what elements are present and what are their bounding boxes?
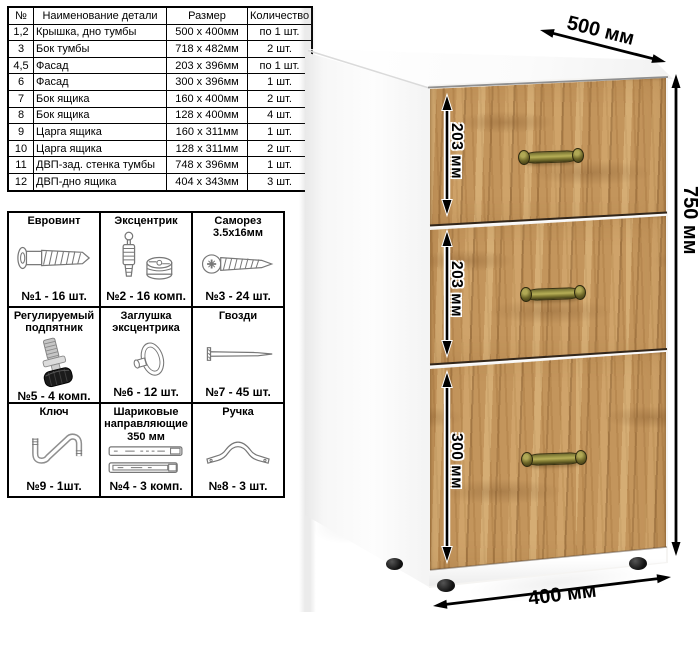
- hardware-count: №2 - 16 комп.: [106, 289, 186, 303]
- hardware-cell-zaglushka: Заглушка эксцентрика №6 - 12 шт.: [101, 308, 191, 402]
- hardware-title: Эксцентрик: [114, 215, 177, 227]
- ball-slides-icon: [105, 443, 187, 479]
- col-number: №: [8, 7, 34, 24]
- hardware-cell-napravlyayushchie: Шариковые направляющие 350 мм №4 - 3 ком…: [101, 404, 191, 496]
- hardware-count: №8 - 3 шт.: [209, 479, 268, 493]
- cam-lock-icon: [106, 227, 186, 289]
- arrow-height-750: [672, 74, 681, 556]
- hardware-title: Заглушка эксцентрика: [102, 310, 190, 335]
- dimension-label-height: 750 мм: [678, 186, 700, 255]
- table-row: 4,5 Фасад 203 x 396мм по 1 шт.: [8, 57, 312, 74]
- table-row: 6 Фасад 300 x 396мм 1 шт.: [8, 74, 312, 91]
- hardware-grid: Евровинт №1 - 16 шт. Эксцентрик: [7, 211, 285, 498]
- table-row: 1,2 Крышка, дно тумбы 500 x 400мм по 1 ш…: [8, 24, 312, 41]
- table-row: 8 Бок ящика 128 x 400мм 4 шт.: [8, 107, 312, 124]
- parts-table: № Наименование детали Размер Количество …: [7, 6, 313, 192]
- cabinet-foot: [629, 557, 647, 570]
- hardware-cell-ruchka: Ручка №8 - 3 шт.: [193, 404, 283, 496]
- table-row: 11 ДВП-зад. стенка тумбы 748 x 396мм 1 ш…: [8, 157, 312, 174]
- table-row: 7 Бок ящика 160 x 400мм 2 шт.: [8, 90, 312, 107]
- hardware-title: Саморез 3.5х16мм: [194, 215, 282, 240]
- cabinet-side-panel: [303, 48, 431, 593]
- hardware-title: Регулируемый подпятник: [10, 310, 98, 335]
- hardware-cell-eurovint: Евровинт №1 - 16 шт.: [9, 213, 99, 306]
- parts-table-header: № Наименование детали Размер Количество: [8, 7, 312, 24]
- hardware-count: №7 - 45 шт.: [205, 385, 271, 399]
- hardware-cell-gvozdi: Гвозди №7 - 45 шт.: [193, 308, 283, 402]
- drawer-handle: [520, 283, 587, 304]
- drawer-handle: [521, 448, 588, 469]
- handle-post: [574, 285, 587, 300]
- col-size: Размер: [167, 7, 248, 24]
- hardware-cell-podpyatnik: Регулируемый подпятник №5 - 4 комп.: [9, 308, 99, 402]
- table-row: 12 ДВП-дно ящика 404 x 343мм 3 шт.: [8, 173, 312, 190]
- col-name: Наименование детали: [34, 7, 167, 24]
- hex-key-icon: [15, 418, 93, 479]
- hardware-title: Шариковые направляющие 350 мм: [102, 406, 190, 443]
- dimension-label-drawer-3: 300 мм: [447, 433, 465, 489]
- hardware-count: №1 - 16 шт.: [21, 289, 87, 303]
- hardware-count: №6 - 12 шт.: [113, 385, 179, 399]
- hardware-title: Евровинт: [27, 215, 80, 227]
- hardware-title: Ручка: [222, 406, 253, 418]
- euro-screw-icon: [13, 227, 95, 289]
- drawer-handle: [518, 146, 585, 167]
- hardware-count: №4 - 3 комп.: [109, 479, 182, 493]
- cabinet-foot: [386, 558, 403, 570]
- table-row: 10 Царга ящика 128 x 311мм 2 шт.: [8, 140, 312, 157]
- self-tapping-screw-icon: [198, 240, 278, 289]
- hardware-cell-samorez: Саморез 3.5х16мм №3 - 24 шт.: [193, 213, 283, 306]
- nail-icon: [198, 322, 278, 385]
- assembly-sheet: { "parts_table": { "headers": ["№", "Наи…: [0, 0, 700, 648]
- table-row: 9 Царга ящика 160 x 311мм 1 шт.: [8, 124, 312, 141]
- handle-post: [575, 450, 588, 465]
- hardware-title: Гвозди: [219, 310, 257, 322]
- hardware-cell-excentric: Эксцентрик №2 - 16 комп.: [101, 213, 191, 306]
- dimension-label-drawer-1: 203 мм: [447, 123, 465, 179]
- hardware-count: №9 - 1шт.: [26, 479, 82, 493]
- hardware-cell-klyuch: Ключ №9 - 1шт.: [9, 404, 99, 496]
- cam-cap-icon: [111, 335, 181, 385]
- cabinet-foot: [437, 579, 455, 592]
- hardware-count: №5 - 4 комп.: [17, 389, 90, 403]
- hardware-title: Ключ: [39, 406, 68, 418]
- handle-icon: [198, 418, 278, 479]
- handle-post: [572, 148, 585, 163]
- table-row: 3 Бок тумбы 718 x 482мм 2 шт.: [8, 41, 312, 58]
- dimension-label-drawer-2: 203 мм: [447, 261, 465, 317]
- dimension-label-width: 500 мм: [564, 12, 636, 51]
- hardware-count: №3 - 24 шт.: [205, 289, 271, 303]
- adjustable-foot-icon: [15, 335, 93, 389]
